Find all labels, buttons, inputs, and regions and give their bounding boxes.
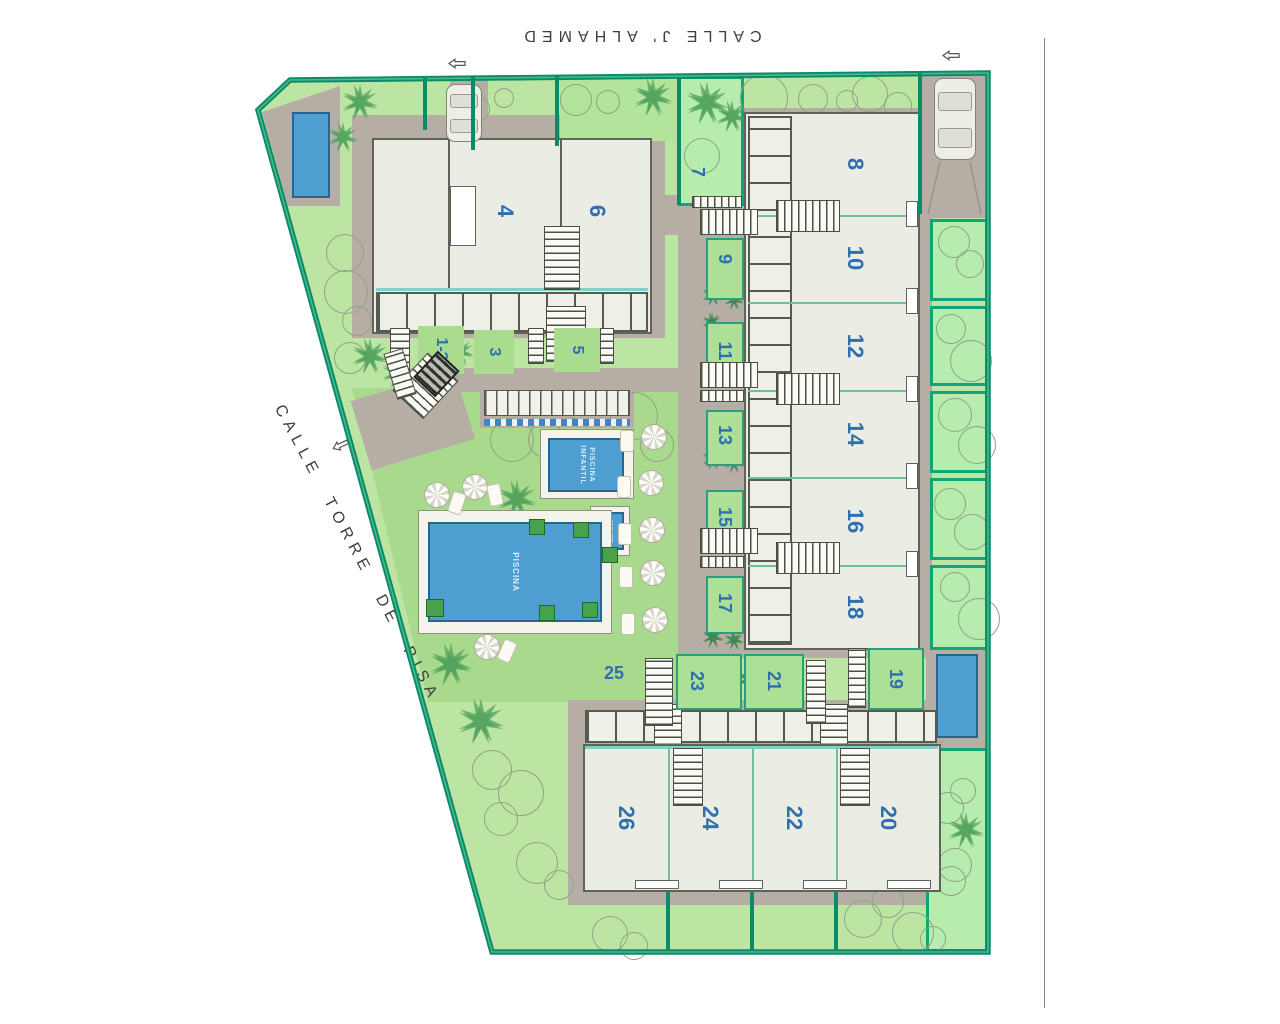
tree-icon: [494, 88, 514, 108]
pool-right: [936, 654, 978, 738]
tree-icon: [560, 84, 592, 116]
unit-label-24: 24: [693, 801, 727, 835]
door-notch: [803, 880, 847, 889]
main-pool-label: PISCINA: [490, 537, 540, 607]
stairs: [806, 660, 826, 724]
lounger-icon: [619, 566, 633, 588]
tree-icon: [950, 778, 976, 804]
palm-icon: [430, 643, 472, 685]
planter: [582, 602, 598, 618]
unit-label-19: 19: [881, 664, 911, 694]
corner-pool: [292, 112, 330, 198]
unit-label-8: 8: [838, 147, 872, 181]
stairs: [700, 556, 744, 568]
lounger-icon: [618, 523, 632, 545]
unit-divider: [752, 748, 754, 888]
terrace-edge-accent: [585, 746, 938, 749]
unit-label-7: 7: [682, 154, 714, 190]
door-notch: [635, 880, 679, 889]
door-notch: [906, 376, 918, 402]
tree-icon: [326, 234, 364, 272]
unit-label-4: 4: [490, 196, 520, 226]
tree-icon: [852, 76, 888, 112]
parasol-icon: [639, 517, 665, 543]
tree-icon: [342, 306, 372, 336]
kids-pool-label: PISCINA INFANTIL: [565, 431, 607, 499]
frame-line: [1044, 38, 1045, 1008]
stairs: [776, 200, 840, 232]
door-notch: [906, 551, 918, 577]
unit-label-21: 21: [759, 666, 789, 696]
site-plan: 4 6 1-2 3 5 8 10 12 14 16 18: [0, 0, 1280, 1024]
lounger-icon: [620, 430, 634, 452]
tree-icon: [938, 398, 972, 432]
terrace-row: [585, 710, 937, 743]
door-notch: [906, 463, 918, 489]
door-notch: [906, 288, 918, 314]
door-notch: [719, 880, 763, 889]
planter: [539, 605, 555, 621]
stairs: [528, 328, 544, 364]
unit-divider: [836, 748, 838, 888]
stairs: [600, 328, 614, 364]
stairs: [700, 209, 758, 235]
tree-icon: [620, 932, 648, 960]
palm-icon: [458, 698, 504, 744]
tree-icon: [596, 90, 620, 114]
unit-label-3: 3: [479, 337, 509, 367]
palm-icon: [328, 122, 358, 152]
tree-icon: [940, 572, 970, 602]
parasol-icon: [424, 482, 450, 508]
terrace-edge-accent: [376, 288, 648, 291]
stairs: [848, 648, 866, 708]
kids-pool-label-line1: PISCINA: [586, 447, 595, 482]
stairs: [840, 748, 870, 806]
unit-label-23: 23: [682, 666, 712, 696]
unit-label-15: 15: [710, 498, 740, 536]
unit-label-6: 6: [582, 196, 612, 226]
building-row-houses: 8 10 12 14 16 18: [744, 112, 920, 650]
main-pool-label-text: PISCINA: [510, 552, 520, 591]
unit-label-13: 13: [710, 416, 740, 454]
parasol-icon: [641, 424, 667, 450]
unit-label-12: 12: [838, 329, 872, 363]
unit-label-25: 25: [594, 658, 634, 688]
unit-label-5: 5: [562, 335, 592, 365]
unit-label-9: 9: [710, 240, 740, 278]
tree-icon: [954, 514, 990, 550]
parking-markers: [484, 419, 630, 426]
stairs: [776, 542, 840, 574]
car-icon: [934, 78, 976, 160]
tree-icon: [544, 870, 574, 900]
door-notch: [906, 201, 918, 227]
unit-label-14: 14: [838, 417, 872, 451]
tree-icon: [958, 426, 996, 464]
tree-icon: [950, 340, 992, 382]
parasol-icon: [640, 560, 666, 586]
lounger-icon: [617, 476, 631, 498]
tree-icon: [936, 314, 966, 344]
stairs: [544, 226, 580, 290]
unit-label-20: 20: [871, 801, 905, 835]
palm-icon: [342, 84, 378, 120]
lounger-icon: [621, 613, 635, 635]
tree-icon: [798, 84, 828, 114]
unit-label-26: 26: [609, 801, 643, 835]
building-block-a: 4 6: [372, 138, 652, 334]
planter: [426, 599, 444, 617]
unit-label-17: 17: [710, 584, 740, 622]
tree-icon: [958, 598, 1000, 640]
building-bottom-block: 26 24 22 20: [583, 744, 941, 892]
parking-rack: [484, 390, 630, 416]
door-notch: [887, 880, 931, 889]
stairs: [692, 196, 742, 208]
palm-icon: [948, 812, 984, 848]
planter: [602, 547, 618, 563]
tree-icon: [956, 250, 984, 278]
unit-divider: [748, 302, 918, 304]
planter: [573, 522, 589, 538]
stairs: [645, 658, 673, 726]
planter: [529, 519, 545, 535]
kids-pool-label-line2: INFANTIL: [577, 445, 586, 485]
tree-icon: [484, 802, 518, 836]
parasol-icon: [642, 607, 668, 633]
street-label-top: CALLE J' ALHAMED: [455, 26, 825, 44]
unit-label-22: 22: [777, 801, 811, 835]
parasol-icon: [638, 470, 664, 496]
stairwell-void: [450, 186, 476, 246]
unit-divider: [748, 477, 918, 479]
stairs: [776, 373, 840, 405]
unit-label-18: 18: [838, 590, 872, 624]
stairs: [700, 390, 744, 402]
unit-divider: [668, 748, 670, 888]
stairs: [673, 748, 703, 806]
unit-label-16: 16: [838, 504, 872, 538]
unit-label-10: 10: [838, 241, 872, 275]
tree-icon: [934, 488, 966, 520]
terrace-row: [376, 292, 648, 332]
palm-icon: [634, 78, 672, 116]
unit-label-11: 11: [710, 332, 740, 370]
tree-icon: [920, 926, 946, 952]
car-icon: [446, 84, 482, 142]
tree-icon: [938, 848, 972, 882]
